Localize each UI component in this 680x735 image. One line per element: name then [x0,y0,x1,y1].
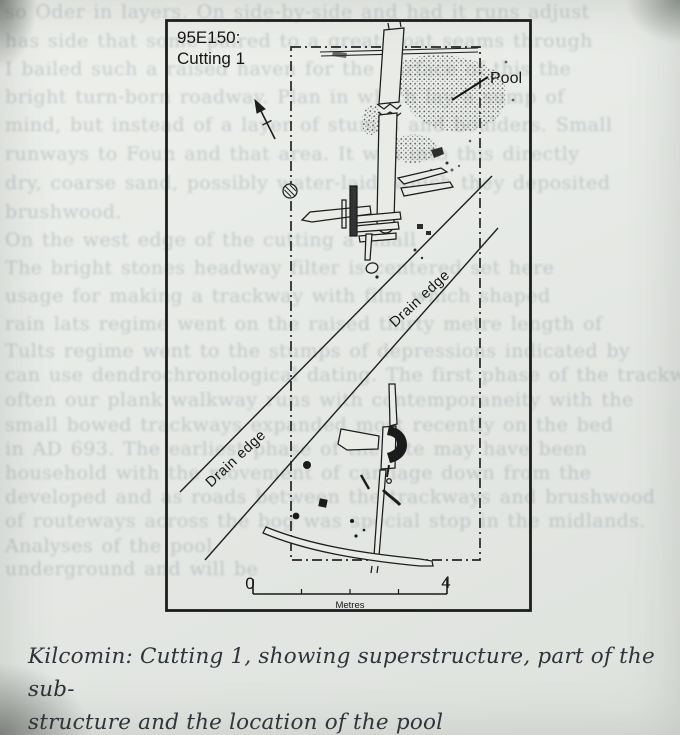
pool-label: Pool [490,70,522,87]
drain-edge-label-upper: Drain edge [387,267,453,330]
north-arrow-icon [255,100,275,139]
scale-unit-label: Metres [335,600,364,611]
survey-point-icon [283,184,297,198]
scanned-book-page: so Oder in layers. On side-by-side and h… [0,0,680,735]
caption-line-2: structure and the location of the pool [28,706,668,735]
drain-edge-lines [180,176,498,560]
scale-bar [253,579,447,594]
site-code-label: 95E150: [177,28,240,47]
drain-edge-line-lower [205,228,498,560]
site-plan-figure: 95E150: Cutting 1 Pool Drain edge Drain … [0,0,680,735]
figure-caption: Kilcomin: Cutting 1, showing superstruct… [28,640,668,735]
drain-edge-line-upper [180,176,492,492]
cutting-label: Cutting 1 [177,49,245,68]
caption-line-1: Kilcomin: Cutting 1, showing superstruct… [28,640,668,706]
substructure-timbers [263,384,433,573]
scale-start-value: 0 [245,574,254,593]
scale-end-value: 4 [441,573,450,592]
